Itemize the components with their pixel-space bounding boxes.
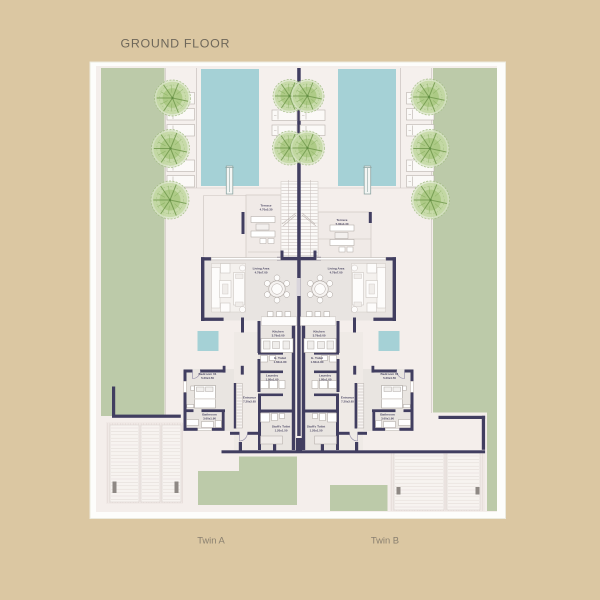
svg-text:1.20x1.50: 1.20x1.50 <box>275 429 288 433</box>
svg-text:3.60x1.90: 3.60x1.90 <box>381 416 394 420</box>
svg-text:1.80x1.60: 1.80x1.60 <box>319 377 332 381</box>
svg-text:5.20x4.50: 5.20x4.50 <box>201 376 214 380</box>
svg-text:1.20x1.50: 1.20x1.50 <box>310 429 323 433</box>
svg-text:7.20x3.65: 7.20x3.65 <box>341 400 354 404</box>
svg-text:4.79x7.00: 4.79x7.00 <box>255 271 268 275</box>
svg-text:3.60x1.90: 3.60x1.90 <box>203 416 216 420</box>
svg-text:7.20x3.65: 7.20x3.65 <box>243 400 256 404</box>
svg-text:5.20x4.50: 5.20x4.50 <box>383 376 396 380</box>
svg-text:4.79x7.00: 4.79x7.00 <box>330 271 343 275</box>
svg-text:GROUND FLOOR: GROUND FLOOR <box>121 37 231 51</box>
svg-text:1.80x1.60: 1.80x1.60 <box>266 377 279 381</box>
svg-text:5.00x4.30: 5.00x4.30 <box>336 222 349 226</box>
svg-text:1.60x1.80: 1.60x1.80 <box>311 360 324 364</box>
svg-text:3.79x5.00: 3.79x5.00 <box>272 334 285 338</box>
svg-text:3.79x5.00: 3.79x5.00 <box>313 334 326 338</box>
svg-text:Twin A: Twin A <box>197 535 225 546</box>
svg-text:1.60x1.80: 1.60x1.80 <box>274 360 287 364</box>
svg-text:Twin B: Twin B <box>371 535 399 546</box>
svg-text:4.70x5.30: 4.70x5.30 <box>260 208 273 212</box>
